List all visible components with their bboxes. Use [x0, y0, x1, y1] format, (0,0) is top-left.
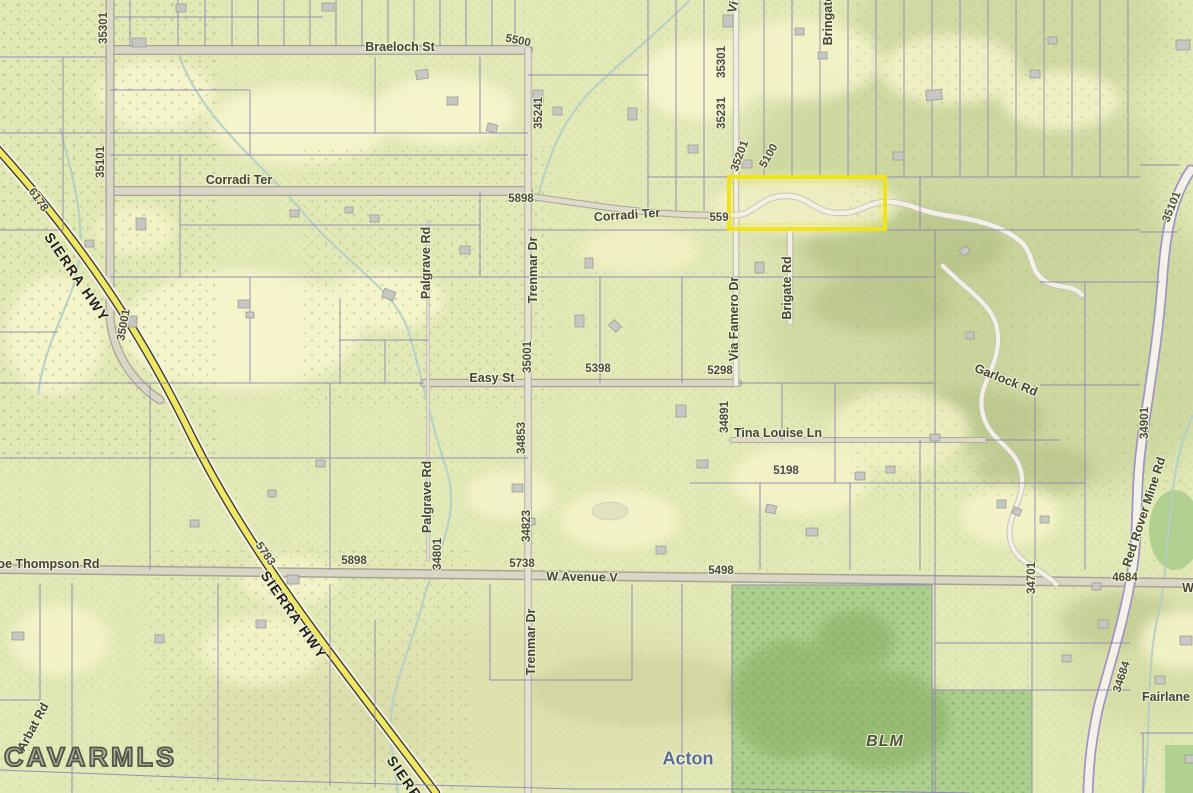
- terrain-layer: [0, 0, 1193, 793]
- map-canvas[interactable]: Braeloch St55003530135101352413530135231…: [0, 0, 1193, 793]
- map-graphics: [0, 0, 1193, 793]
- watermark: CAVARMLS: [4, 742, 177, 773]
